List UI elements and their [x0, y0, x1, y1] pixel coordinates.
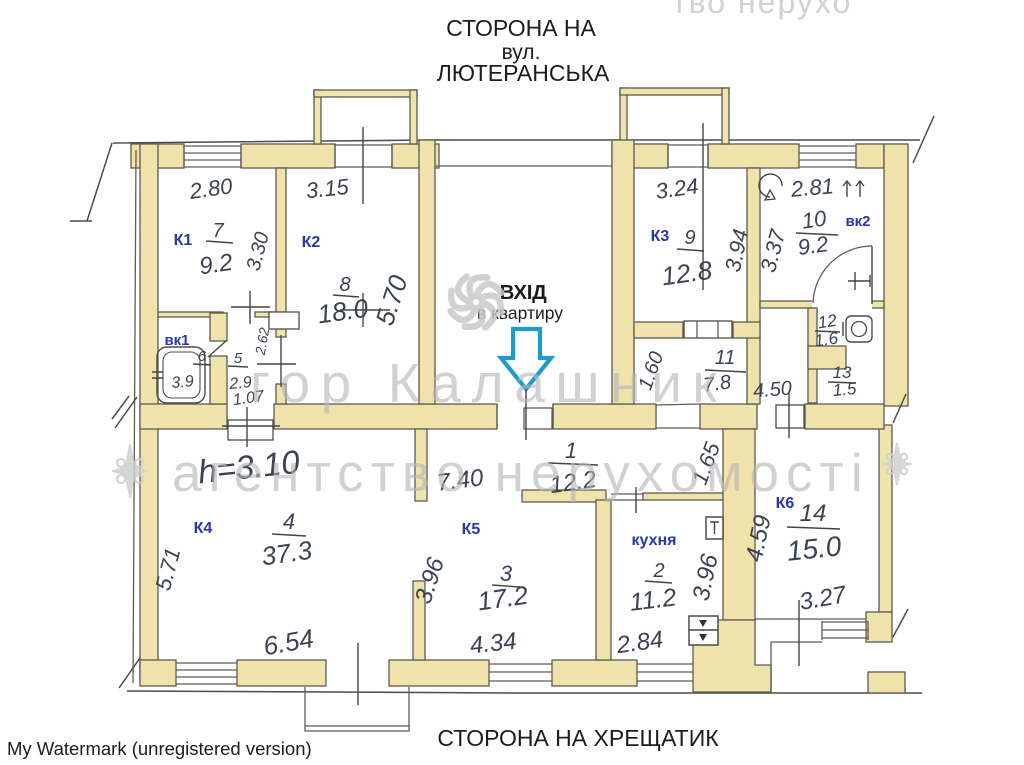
svg-text:гор Калашник: гор Калашник	[250, 352, 727, 414]
svg-text:7: 7	[212, 220, 224, 242]
svg-text:15.0: 15.0	[785, 530, 843, 567]
svg-text:4.50: 4.50	[752, 377, 793, 402]
svg-text:2.81: 2.81	[789, 173, 835, 202]
svg-text:14: 14	[800, 500, 827, 527]
svg-text:1.6: 1.6	[813, 328, 840, 350]
svg-text:6: 6	[198, 348, 207, 365]
svg-text:My Watermark (unregistered ver: My Watermark (unregistered version)	[7, 738, 312, 759]
svg-text:агентство нерухомості: агентство нерухомості	[172, 444, 870, 503]
svg-text:11.2: 11.2	[628, 583, 678, 617]
svg-text:К3: К3	[651, 228, 670, 245]
svg-text:4.34: 4.34	[469, 628, 518, 660]
svg-text:8: 8	[339, 274, 350, 296]
svg-text:10: 10	[800, 205, 828, 233]
svg-text:3.9: 3.9	[171, 373, 195, 392]
svg-text:9: 9	[684, 227, 695, 249]
svg-text:3.15: 3.15	[305, 174, 351, 203]
svg-text:2: 2	[652, 560, 664, 582]
svg-text:ЛЮТЕРАНСЬКА: ЛЮТЕРАНСЬКА	[437, 60, 610, 86]
svg-text:К4: К4	[194, 520, 213, 537]
svg-text:СТОРОНА НА ХРЕЩАТИК: СТОРОНА НА ХРЕЩАТИК	[437, 725, 719, 751]
svg-text:9.2: 9.2	[198, 249, 235, 280]
svg-text:ВХІД: ВХІД	[500, 281, 547, 304]
svg-text:4: 4	[283, 509, 295, 534]
svg-text:К5: К5	[462, 521, 481, 538]
svg-text:К1: К1	[174, 232, 193, 249]
svg-text:тво нерухо: тво нерухо	[672, 0, 852, 20]
svg-text:вк1: вк1	[164, 332, 189, 349]
svg-text:9.2: 9.2	[796, 231, 830, 260]
svg-text:кухня: кухня	[632, 532, 677, 549]
svg-text:1.5: 1.5	[832, 379, 858, 400]
svg-text:СТОРОНА НА: СТОРОНА НА	[446, 15, 596, 41]
svg-text:вк2: вк2	[845, 213, 870, 230]
svg-text:К2: К2	[302, 234, 321, 251]
svg-text:5: 5	[234, 350, 243, 367]
